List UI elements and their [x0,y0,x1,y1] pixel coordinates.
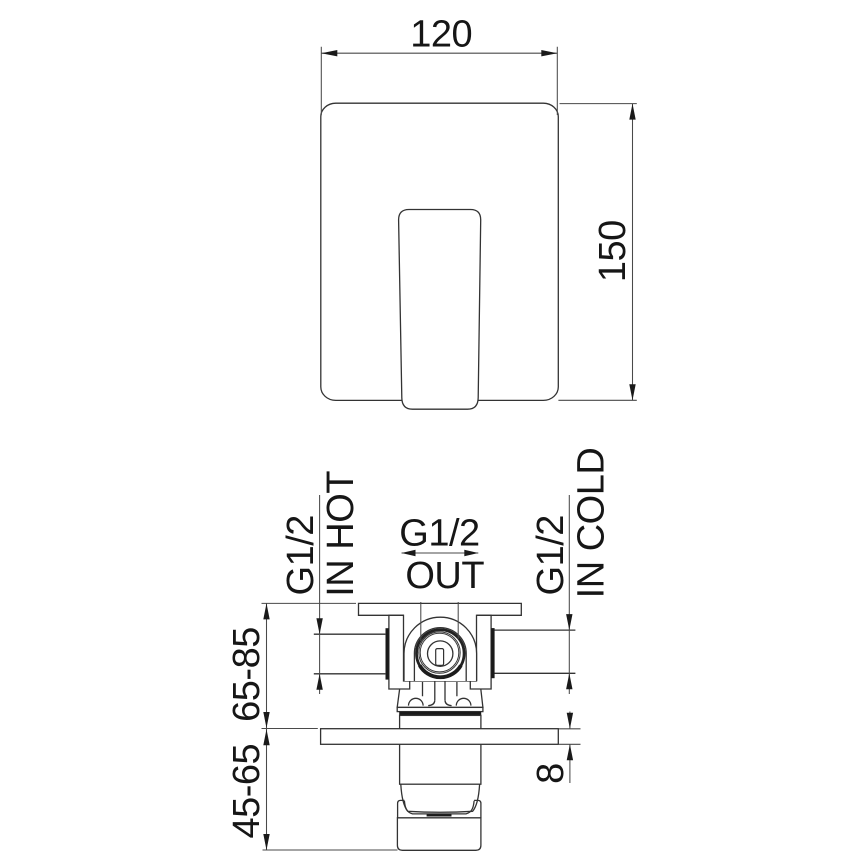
svg-text:G1/2: G1/2 [530,515,572,595]
svg-text:IN COLD: IN COLD [571,448,613,599]
svg-text:120: 120 [410,14,472,56]
svg-text:IN HOT: IN HOT [320,471,362,597]
svg-text:G1/2: G1/2 [280,515,322,595]
svg-text:G1/2: G1/2 [399,513,479,555]
svg-text:8: 8 [530,763,572,784]
svg-text:45-65: 45-65 [226,744,268,839]
svg-text:OUT: OUT [405,555,484,597]
svg-text:150: 150 [592,220,634,282]
svg-text:65-85: 65-85 [226,627,268,722]
